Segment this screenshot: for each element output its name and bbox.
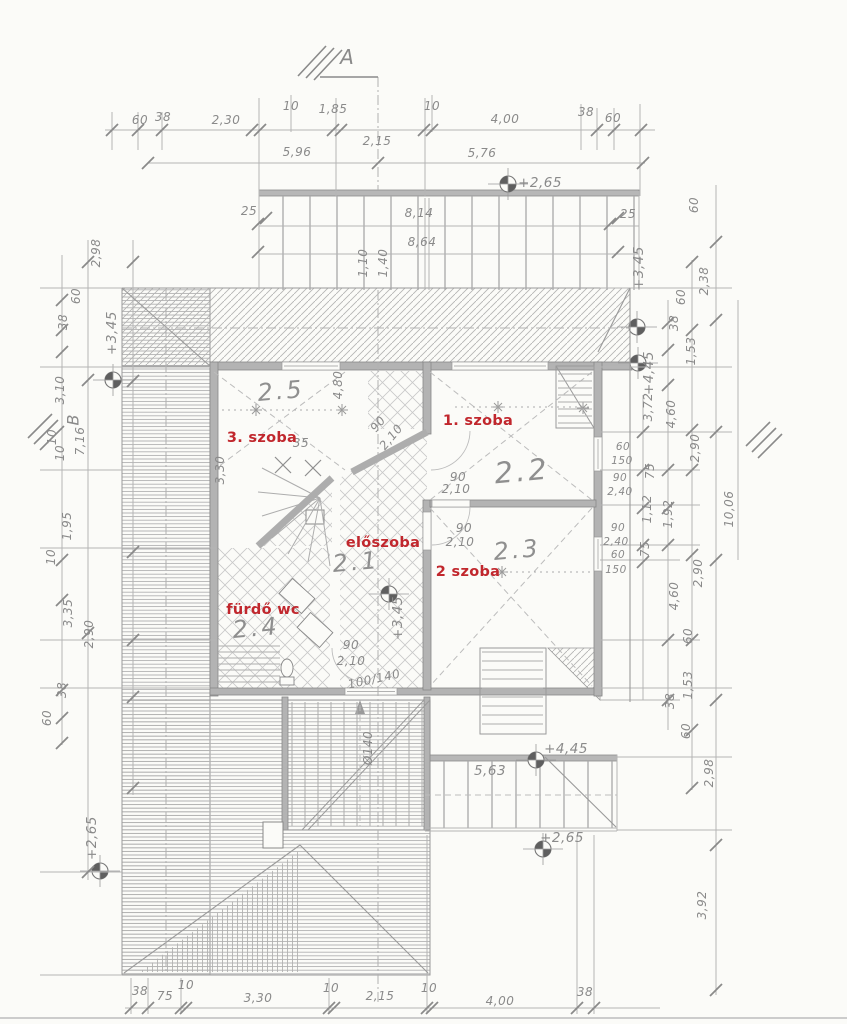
dim-label: 1,53 [681, 671, 695, 700]
dim-label: 60 [679, 723, 693, 739]
door-note: 100/140 [346, 667, 401, 692]
dim-label: 3,30 [213, 456, 227, 485]
dim-label: 25 [241, 204, 257, 218]
dim-label: 1,10 [356, 249, 370, 278]
dim-label: 2,90 [82, 620, 96, 649]
dim-label: 1,53 [684, 337, 698, 366]
dim-label: 3,92 [695, 891, 709, 920]
level-label: +3,45 [631, 246, 647, 290]
door-dim: 2,10 [446, 535, 475, 549]
dim-label: 90 [611, 522, 625, 534]
dim-label: 1,40 [376, 249, 390, 278]
dim-label: 75 [643, 463, 657, 479]
level-label: +2,65 [540, 830, 584, 846]
dim-label: 150 [611, 455, 633, 467]
room-number: 2.2 [493, 452, 551, 491]
door-dim: 2,10 [442, 482, 471, 496]
dim-label: 2,98 [89, 239, 103, 268]
dim-label: 38 [667, 315, 681, 331]
room-name-3-szoba: 3. szoba [227, 430, 297, 446]
dim-label: 90 [613, 472, 627, 484]
dim-label: 1,12 [640, 495, 654, 524]
dim-label: 4,00 [486, 994, 515, 1008]
dim-label: 8,64 [408, 235, 437, 249]
dim-label: 60 [40, 710, 54, 726]
dim-label: 38 [663, 693, 677, 709]
dim-label: 4,60 [667, 582, 681, 611]
level-label: +4,45 [641, 351, 657, 395]
dim-label: 1,95 [60, 512, 74, 541]
room-number: 2.3 [492, 534, 541, 566]
level-label: +4,45 [544, 741, 588, 757]
dim-label: 60 [616, 441, 630, 453]
dim-label: 10 [53, 445, 67, 461]
floor-plan-scan: A B 60 38 2,30 10 1,85 10 4,00 38 60 2,1… [0, 0, 847, 1024]
dim-label: 38 [577, 985, 593, 999]
door-dim: 90 [343, 638, 359, 652]
dim-label: 2,98 [702, 759, 716, 788]
dim-label: 5,96 [283, 145, 312, 159]
dim-label: 10 [178, 978, 194, 992]
dim-label: 1,85 [319, 102, 348, 116]
level-label: +3,45 [390, 596, 406, 640]
dim-label: 10 [44, 549, 58, 565]
annotations: A B 60 38 2,30 10 1,85 10 4,00 38 60 2,1… [0, 0, 847, 1024]
dim-label: 38 [55, 682, 69, 698]
dim-label: 60 [132, 113, 148, 127]
dim-label: 10 [323, 981, 339, 995]
dim-label: 4,80 [331, 371, 345, 400]
room-name-eloszoba: előszoba [346, 535, 420, 551]
dim-label: 4,00 [491, 112, 520, 126]
dim-label: 38 [578, 105, 594, 119]
dim-label: 38 [56, 314, 70, 330]
dim-label: 3,72 [641, 393, 655, 422]
dim-label: 2,90 [691, 559, 705, 588]
room-name-1-szoba: 1. szoba [443, 413, 513, 429]
dim-label: 10 [421, 981, 437, 995]
room-number: 2.5 [256, 375, 305, 407]
dim-label: 10 [424, 99, 440, 113]
level-label: +2,65 [84, 816, 100, 860]
dim-label: 2,90 [688, 434, 702, 463]
section-marker-b: B [64, 415, 83, 426]
dim-label: 10,06 [722, 491, 736, 528]
dim-label: 75 [157, 989, 173, 1003]
dim-label: 4,60 [664, 400, 678, 429]
dim-label: 3,35 [61, 599, 75, 628]
dim-label: 3,30 [244, 991, 273, 1005]
dim-label: 2,30 [212, 113, 241, 127]
door-dim: 2,10 [337, 654, 366, 668]
dim-label: 60 [681, 628, 695, 644]
dim-label: 3,10 [53, 376, 67, 405]
section-marker-a: A [340, 45, 354, 69]
room-name-2-szoba: 2 szoba [436, 564, 500, 580]
dim-label: 38 [155, 110, 171, 124]
dim-label: 2,40 [607, 486, 632, 498]
dim-label: 2,15 [366, 989, 395, 1003]
dim-label: Ø140 [361, 731, 375, 765]
dim-label: 38 [132, 984, 148, 998]
dim-label: 75 [638, 541, 652, 557]
dim-label: 2,38 [697, 267, 711, 296]
dim-label: 10 [45, 429, 59, 445]
room-name-furdo-wc: fürdő wc [226, 602, 300, 618]
dim-label: 60 [605, 111, 621, 125]
dim-label: 5,76 [468, 146, 497, 160]
dim-label: 8,14 [405, 206, 434, 220]
dim-label: 60 [611, 549, 625, 561]
dim-label: 60 [674, 289, 688, 305]
dim-label: 150 [605, 564, 627, 576]
dim-label: 10 [283, 99, 299, 113]
dim-label: 5,63 [474, 763, 506, 779]
dim-label: 60 [69, 288, 83, 304]
dim-label: 2,40 [603, 536, 628, 548]
level-label: +2,65 [518, 175, 562, 191]
dim-label: 2,15 [363, 134, 392, 148]
level-label: +3,45 [104, 311, 120, 355]
door-dim: 90 [456, 521, 472, 535]
dim-label: 25 [620, 207, 636, 221]
dim-label: 7,16 [73, 427, 87, 456]
dim-label: 1,92 [661, 500, 675, 529]
dim-label: 60 [687, 197, 701, 213]
